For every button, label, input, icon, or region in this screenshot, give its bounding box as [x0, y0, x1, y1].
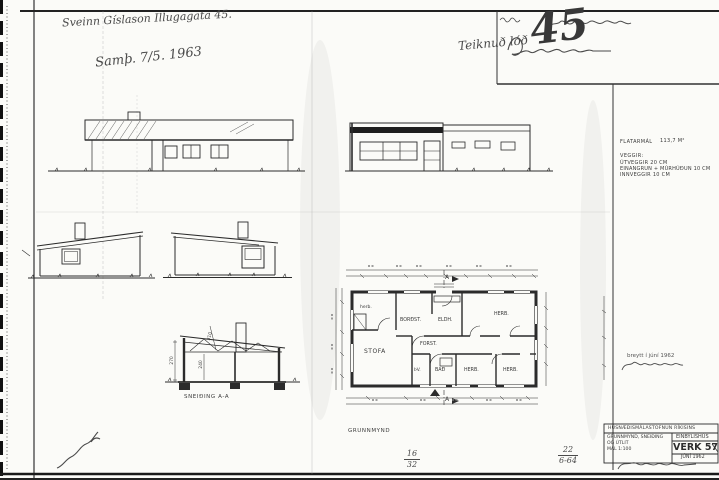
front-elevation-drawing — [48, 112, 305, 171]
room-label-herb-small: herb. — [360, 305, 372, 310]
room-label-bath: BAÐ — [435, 368, 445, 373]
room-label-bed-top: HERB. — [494, 312, 509, 317]
handwritten-fraction: 22 6-64 — [558, 446, 578, 465]
spec-line: INNVEGGIR 10 CM — [620, 172, 670, 178]
section-marker-a-top: A — [445, 274, 449, 281]
drawing-contents-line1: GRUNNMYND, SNEIÐING — [607, 435, 663, 440]
dim-room-height: 240 — [199, 360, 204, 369]
room-label-dining: BORÐST. — [400, 318, 421, 323]
fraction-numerator: 16 — [404, 450, 420, 458]
room-label-hall: FORST. — [420, 342, 437, 347]
floor-plan-drawing — [332, 266, 606, 406]
section-marker-a-bottom: A — [445, 396, 449, 403]
section-drawing — [165, 323, 300, 390]
drawing-scale: MÁL 1:100 — [607, 447, 631, 452]
drawing-date: JÚNÍ 1962 — [681, 455, 705, 460]
fraction-denominator: 6-64 — [558, 457, 578, 465]
changed-note: breytt í júní 1962 — [627, 353, 674, 359]
fraction-numerator: 22 — [558, 446, 578, 454]
drawing-contents-line2: OG ÚTLIT — [607, 441, 629, 446]
area-label: FLATARMÁL — [620, 139, 653, 145]
room-label-kitchen: ELDH. — [438, 318, 452, 323]
side-elevation-right-drawing — [163, 222, 292, 278]
rear-elevation-drawing — [345, 123, 553, 171]
room-label-bed-right: HERB. — [503, 368, 518, 373]
agency-name: HÚSNÆÐISMÁLASTOFNUN RÍKISINS — [608, 426, 695, 431]
drawing-linework — [0, 0, 719, 480]
dim-wall-height: 270 — [170, 356, 175, 365]
blueprint-sheet: Sveinn Gíslason Illugagata 45. Samþ. 7/5… — [0, 0, 719, 480]
room-label-living: STOFA — [364, 348, 386, 355]
plan-label: GRUNNMYND — [348, 428, 390, 434]
section-label: SNEIÐING A-A — [184, 394, 229, 400]
lot-number: 45 — [527, 0, 591, 54]
project-number: VERK 57 — [673, 442, 718, 453]
walls-heading: VEGGIR: — [620, 153, 644, 159]
room-label-laundry: ÞV. — [414, 368, 421, 373]
building-type: EINBÝLISHÚS — [676, 434, 709, 440]
area-value: 113,7 M² — [660, 138, 685, 144]
handwritten-fraction: 16 32 — [404, 450, 420, 469]
room-label-bed-mid: HERB. — [464, 368, 479, 373]
signature-handwriting — [57, 18, 696, 469]
side-elevation-left-drawing — [22, 223, 155, 278]
fraction-denominator: 32 — [404, 461, 420, 469]
